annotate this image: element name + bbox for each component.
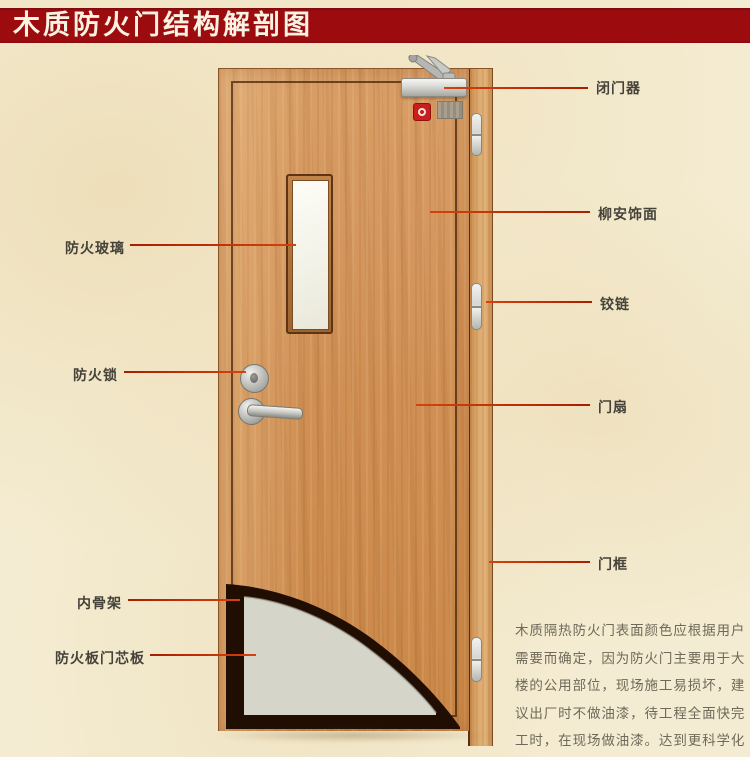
hinge-top: [471, 113, 482, 156]
cutaway-section: [219, 581, 469, 731]
hinge-bottom: [471, 637, 482, 682]
label-inner-skeleton: 内骨架: [30, 593, 122, 613]
door-leaf: [218, 68, 469, 731]
fire-board-core-panel: [244, 597, 436, 715]
door-shadow: [208, 729, 500, 742]
label-fire-glass: 防火玻璃: [30, 238, 125, 258]
leader-hinge: [486, 301, 592, 303]
leader-lauan-veneer: [430, 211, 590, 213]
label-door-leaf: 门扇: [598, 397, 628, 417]
leader-door-frame: [489, 561, 590, 563]
label-door-closer: 闭门器: [596, 78, 641, 98]
label-fire-lock: 防火锁: [30, 365, 118, 385]
title-banner: 木质防火门结构解剖图: [0, 8, 750, 43]
leader-fire-lock: [124, 371, 246, 373]
diagram-canvas: 木质防火门结构解剖图 防火玻璃 防火锁: [0, 0, 750, 757]
red-label-chip-icon: [413, 103, 431, 121]
leader-door-closer: [444, 87, 588, 89]
leader-inner-skeleton: [128, 599, 240, 601]
page-title: 木质防火门结构解剖图: [0, 8, 750, 43]
label-fire-board-core: 防火板门芯板: [20, 648, 145, 668]
leader-fire-glass: [130, 244, 296, 246]
fire-glass-window: [286, 174, 333, 334]
leader-fire-board-core: [150, 654, 256, 656]
label-hinge: 铰链: [600, 294, 630, 314]
label-lauan-veneer: 柳安饰面: [598, 204, 658, 224]
leader-door-leaf: [416, 404, 590, 406]
description-text: 木质隔热防火门表面颜色应根据用户需要而确定，因为防火门主要用于大楼的公用部位，现…: [515, 617, 745, 757]
hinge-middle: [471, 283, 482, 330]
fire-glass-pane: [292, 180, 329, 330]
label-door-frame: 门框: [598, 554, 628, 574]
fire-lock-cylinder: [240, 364, 269, 393]
metal-plate-icon: [437, 101, 463, 119]
